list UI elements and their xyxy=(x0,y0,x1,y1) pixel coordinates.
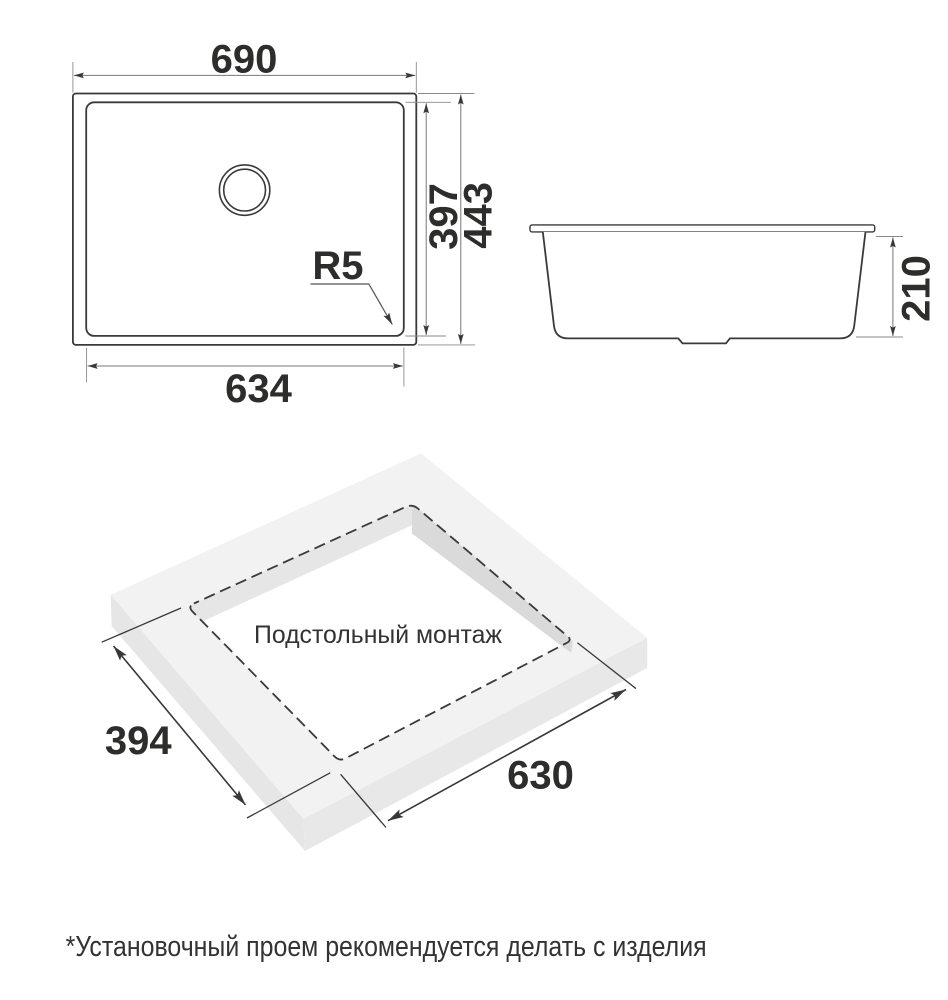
svg-text:394: 394 xyxy=(105,719,172,763)
svg-text:443: 443 xyxy=(457,182,501,249)
svg-text:690: 690 xyxy=(211,37,278,81)
svg-text:R5: R5 xyxy=(312,244,363,288)
svg-text:630: 630 xyxy=(507,753,574,797)
svg-text:210: 210 xyxy=(894,255,938,322)
svg-text:Подстольный монтаж: Подстольный монтаж xyxy=(254,621,502,649)
svg-text:*Установочный проем рекомендуе: *Установочный проем рекомендуется делать… xyxy=(66,931,707,963)
svg-text:634: 634 xyxy=(225,367,292,411)
